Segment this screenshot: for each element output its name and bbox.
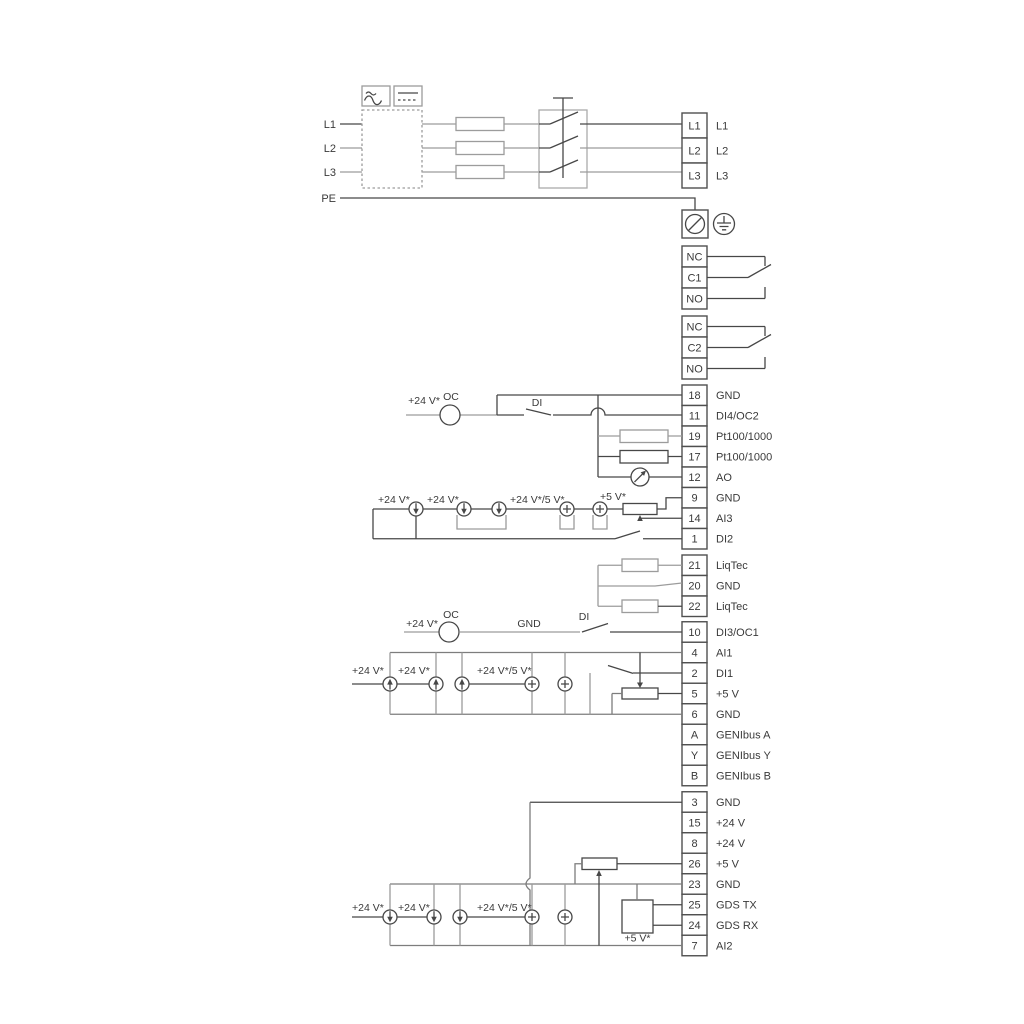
terminal-number-26: 26 xyxy=(688,858,700,870)
fuse-l3 xyxy=(456,166,504,179)
gds-tx-rx-wires xyxy=(653,905,682,926)
diagram-svg: L1 L2 L3 PE L1L1L2L2L3L3 xyxy=(0,0,1024,1024)
terminal-number-7: 7 xyxy=(691,940,697,952)
ai1-di1-circuit: +24 V* +24 V* +24 V*/5 V* xyxy=(352,653,682,715)
potentiometer-ai1 xyxy=(622,688,658,699)
pt100-sensor-19 xyxy=(620,430,668,443)
terminal-group-2: 21LiqTec20GND22LiqTec xyxy=(682,555,748,617)
terminal-number-22: 22 xyxy=(688,601,700,613)
v24-5v-label-1: +24 V*/5 V* xyxy=(510,494,565,506)
terminal-number-8: 8 xyxy=(691,838,697,850)
v24-label-4: +24 V* xyxy=(406,618,438,630)
terminal-label-19: Pt100/1000 xyxy=(716,431,772,443)
pe-wire xyxy=(340,198,695,210)
terminal-number-17: 17 xyxy=(688,452,700,464)
terminal-label-B: GENIbus B xyxy=(716,770,771,782)
potentiometer-ai2 xyxy=(582,858,617,870)
mains-input-label-l2: L2 xyxy=(324,143,336,155)
terminal-number-2: 2 xyxy=(691,668,697,680)
terminal-number-NC: NC xyxy=(687,251,703,263)
wiper-down-arrow xyxy=(637,683,643,689)
fuse-l1 xyxy=(456,118,504,131)
terminal-label-9: GND xyxy=(716,493,741,505)
terminal-number-20: 20 xyxy=(688,581,700,593)
v24-5v-label-2: +24 V*/5 V* xyxy=(477,665,532,677)
liqtec-sensor-21 xyxy=(622,559,658,572)
terminal-label-Y: GENIbus Y xyxy=(716,750,771,762)
relay1-terminal-block: NCC1NO xyxy=(682,246,707,309)
terminal-number-A: A xyxy=(691,729,699,741)
mains-input-label-l3: L3 xyxy=(324,167,336,179)
terminal-label-26: +5 V xyxy=(716,858,740,870)
pt100-sensor-17 xyxy=(620,451,668,464)
v24-label-3: +24 V* xyxy=(427,494,459,506)
di-label-1: DI xyxy=(532,397,543,409)
relay2-terminal-block: NCC2NO xyxy=(682,316,707,379)
terminal-number-18: 18 xyxy=(688,390,700,402)
relay1-contact-wiring xyxy=(707,257,771,299)
terminal-number-C2: C2 xyxy=(687,342,701,354)
terminal-label-20: GND xyxy=(716,581,741,593)
terminal-number-Y: Y xyxy=(691,750,699,762)
terminal-number-4: 4 xyxy=(691,647,697,659)
terminal-label-18: GND xyxy=(716,390,741,402)
terminal-label-4: AI1 xyxy=(716,647,733,659)
terminal-label-15: +24 V xyxy=(716,817,746,829)
v24-label-6: +24 V* xyxy=(398,665,430,677)
v5-label-1: +5 V* xyxy=(600,491,626,503)
v24-label-5: +24 V* xyxy=(352,665,384,677)
terminal-number-24: 24 xyxy=(688,920,700,932)
terminal-label-7: AI2 xyxy=(716,940,733,952)
terminal-number-6: 6 xyxy=(691,709,697,721)
di2-loop-and-switch xyxy=(373,531,682,539)
open-collector-circle-1 xyxy=(440,405,460,425)
di3-switch-and-wire xyxy=(582,624,682,633)
di4-wire-with-hop xyxy=(553,408,682,415)
converter-dashed-box xyxy=(362,110,422,188)
liqtec-sensor-22 xyxy=(622,600,658,613)
terminal-number-10: 10 xyxy=(688,627,700,639)
l2-l3-input-wires xyxy=(340,148,362,172)
potentiometer-ai3 xyxy=(623,504,657,515)
terminal-label-1: DI2 xyxy=(716,534,733,546)
v24-5v-label-3: +24 V*/5 V* xyxy=(477,902,532,914)
oc-label-1: OC xyxy=(443,391,459,403)
mains-input-label-l1: L1 xyxy=(324,119,336,131)
pot-to-gnd9-wire xyxy=(657,498,682,509)
di3-oc1-circuit: +24 V* OC GND DI xyxy=(404,609,682,642)
terminal-label-25: GDS TX xyxy=(716,899,757,911)
terminal-number-15: 15 xyxy=(688,817,700,829)
terminal-number-9: 9 xyxy=(691,493,697,505)
ai3-di2-circuit: +24 V* +24 V* +24 V*/5 V* +5 V* xyxy=(373,491,682,539)
liqtec-circuit xyxy=(598,559,682,613)
fuse-l2 xyxy=(456,142,504,155)
fuse-to-switch-wires xyxy=(504,124,539,172)
converter-to-fuse-wires xyxy=(422,124,456,172)
terminal-number-25: 25 xyxy=(688,899,700,911)
terminal-number-14: 14 xyxy=(688,513,700,525)
mains-section: L1 L2 L3 PE L1L1L2L2L3L3 xyxy=(321,86,734,238)
terminal-label-24: GDS RX xyxy=(716,920,759,932)
terminal-label-22: LiqTec xyxy=(716,601,748,613)
terminal-label-11: DI4/OC2 xyxy=(716,411,759,423)
terminal-number-1: 1 xyxy=(691,534,697,546)
terminal-label-12: AO xyxy=(716,472,732,484)
terminal-number-NO: NO xyxy=(686,363,703,375)
gnd-label: GND xyxy=(517,618,541,630)
pot-wiper-up-arrow xyxy=(596,870,602,876)
v24-label-1: +24 V* xyxy=(408,395,440,407)
pot-to-gnd23-wire xyxy=(575,864,582,884)
terminal-number-5: 5 xyxy=(691,688,697,700)
di-box-and-switch-1 xyxy=(497,395,682,415)
terminal-number-11: 11 xyxy=(689,411,700,423)
terminal-group-4: 3GND15+24 V8+24 V26+5 V23GND25GDS TX24GD… xyxy=(682,792,759,956)
v5-label-2: +5 V* xyxy=(625,933,651,945)
di4-oc2-circuit: +24 V* OC DI xyxy=(406,391,682,486)
mains-input-label-pe: PE xyxy=(321,193,336,205)
terminal-label-21: LiqTec xyxy=(716,560,748,572)
terminal-number-C1: C1 xyxy=(687,272,701,284)
terminal-label-5: +5 V xyxy=(716,688,740,700)
terminal-number-NC: NC xyxy=(687,321,703,333)
terminal-number-L3: L3 xyxy=(688,170,700,182)
dc-symbol-box xyxy=(394,86,422,106)
v24-label-2: +24 V* xyxy=(378,494,410,506)
terminal-label-3: GND xyxy=(716,797,741,809)
terminal-number-B: B xyxy=(691,770,698,782)
terminal-label-10: DI3/OC1 xyxy=(716,627,759,639)
terminal-label-L3: L3 xyxy=(716,170,728,182)
relay1-section: NCC1NO xyxy=(682,246,771,309)
terminal-number-L2: L2 xyxy=(688,145,700,157)
terminal-number-23: 23 xyxy=(688,879,700,891)
terminal-label-17: Pt100/1000 xyxy=(716,452,772,464)
device-brackets xyxy=(457,515,607,529)
terminal-label-L1: L1 xyxy=(716,120,728,132)
ac-symbol-box xyxy=(362,86,390,106)
wiring-diagram: L1 L2 L3 PE L1L1L2L2L3L3 xyxy=(0,0,1024,1024)
di-label-2: DI xyxy=(579,611,590,623)
terminal-label-14: AI3 xyxy=(716,513,733,525)
terminal-number-NO: NO xyxy=(686,293,703,305)
relay2-section: NCC2NO xyxy=(682,316,771,379)
pot-to-gnd-wire xyxy=(612,694,622,715)
open-collector-circle-2 xyxy=(439,622,459,642)
terminal-label-6: GND xyxy=(716,709,741,721)
terminal-label-2: DI1 xyxy=(716,668,733,680)
relay2-contact-wiring xyxy=(707,327,771,369)
terminal-label-23: GND xyxy=(716,879,741,891)
terminal-number-3: 3 xyxy=(691,797,697,809)
v24-label-7: +24 V* xyxy=(352,902,384,914)
terminal-number-12: 12 xyxy=(688,472,700,484)
switch-to-terminal-l2-l3 xyxy=(580,148,682,172)
terminal-group-3: 10DI3/OC14AI12DI15+5 V6GNDAGENIbus AYGEN… xyxy=(682,622,771,786)
main-switch-contacts xyxy=(539,112,578,172)
oc-label-2: OC xyxy=(443,609,459,621)
pot-wiper-to-ai3 xyxy=(640,518,682,521)
terminal-label-L2: L2 xyxy=(716,145,728,157)
di1-switch-wire xyxy=(608,666,682,674)
ai2-gds-circuit: +24 V* +24 V* +24 V*/5 V* +5 V* xyxy=(352,802,682,945)
terminal-number-L1: L1 xyxy=(688,120,700,132)
gds-sensor-box xyxy=(622,900,653,933)
terminal-label-A: GENIbus A xyxy=(716,729,771,741)
terminal-label-8: +24 V xyxy=(716,838,746,850)
terminal-number-21: 21 xyxy=(688,560,700,572)
terminal-number-19: 19 xyxy=(688,431,700,443)
terminal-group-1: 18GND11DI4/OC219Pt100/100017Pt100/100012… xyxy=(682,385,772,549)
v24-label-8: +24 V* xyxy=(398,902,430,914)
mains-terminal-block: L1L1L2L2L3L3 xyxy=(682,113,728,188)
